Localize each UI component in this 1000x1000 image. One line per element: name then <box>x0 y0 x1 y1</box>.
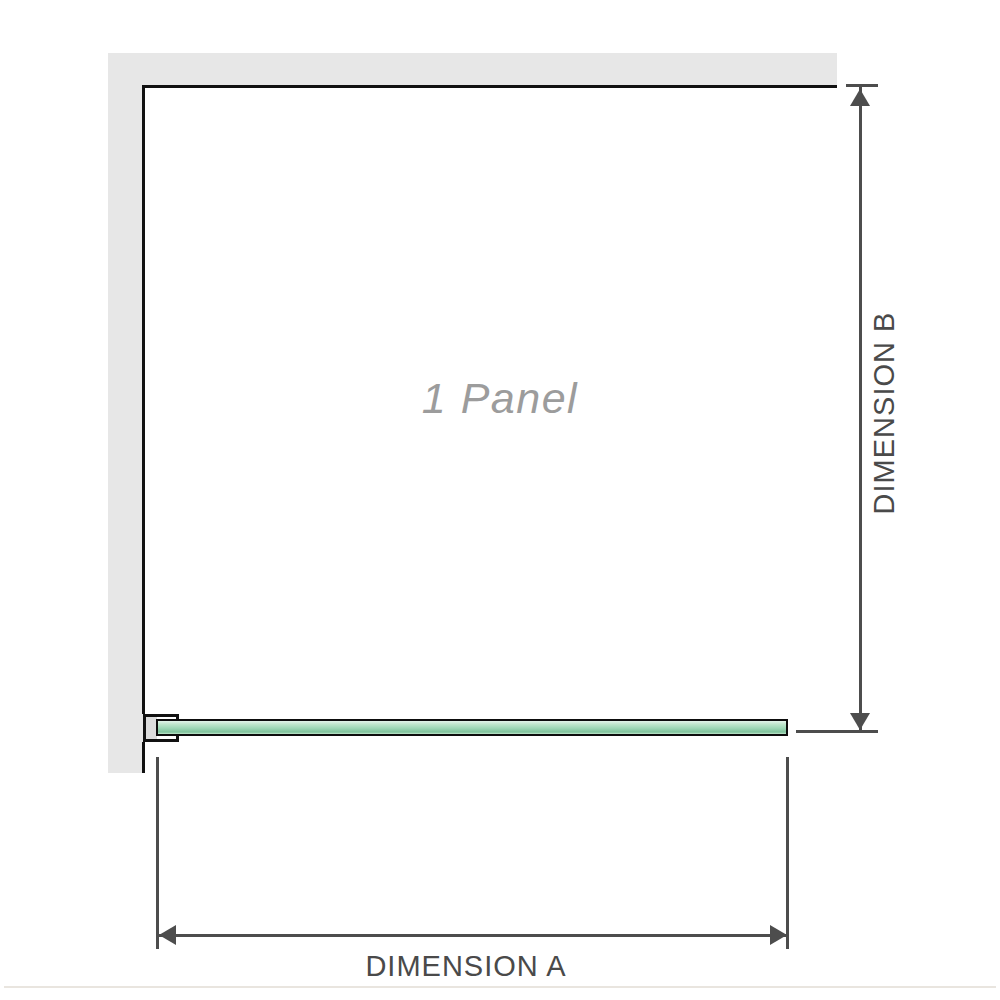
glass-panel <box>156 719 788 736</box>
dimension-b-top-tick <box>846 84 878 87</box>
panel-count-label: 1 Panel <box>422 374 578 423</box>
dimension-a-line <box>158 934 788 937</box>
page-bottom-divider <box>4 986 996 988</box>
dimension-a-label: DIMENSION A <box>365 950 566 983</box>
dimension-b-line <box>859 87 862 732</box>
wall-edge-lower <box>142 742 145 773</box>
arrow-right-icon <box>770 925 787 945</box>
arrow-down-icon <box>850 713 870 730</box>
dimension-a-right-extension <box>786 757 789 949</box>
dimension-a-left-extension <box>156 757 159 949</box>
panel-top-edge <box>142 85 837 88</box>
wall-top <box>108 53 837 85</box>
dimension-b-bottom-tick <box>796 730 878 733</box>
dimension-b-label: DIMENSION B <box>868 312 901 515</box>
panel-dimension-diagram: 1 Panel DIMENSION B DIMENSION A <box>0 0 1000 1000</box>
arrow-left-icon <box>159 925 176 945</box>
panel-left-edge <box>142 85 145 714</box>
arrow-up-icon <box>850 89 870 106</box>
wall-left <box>108 53 143 773</box>
